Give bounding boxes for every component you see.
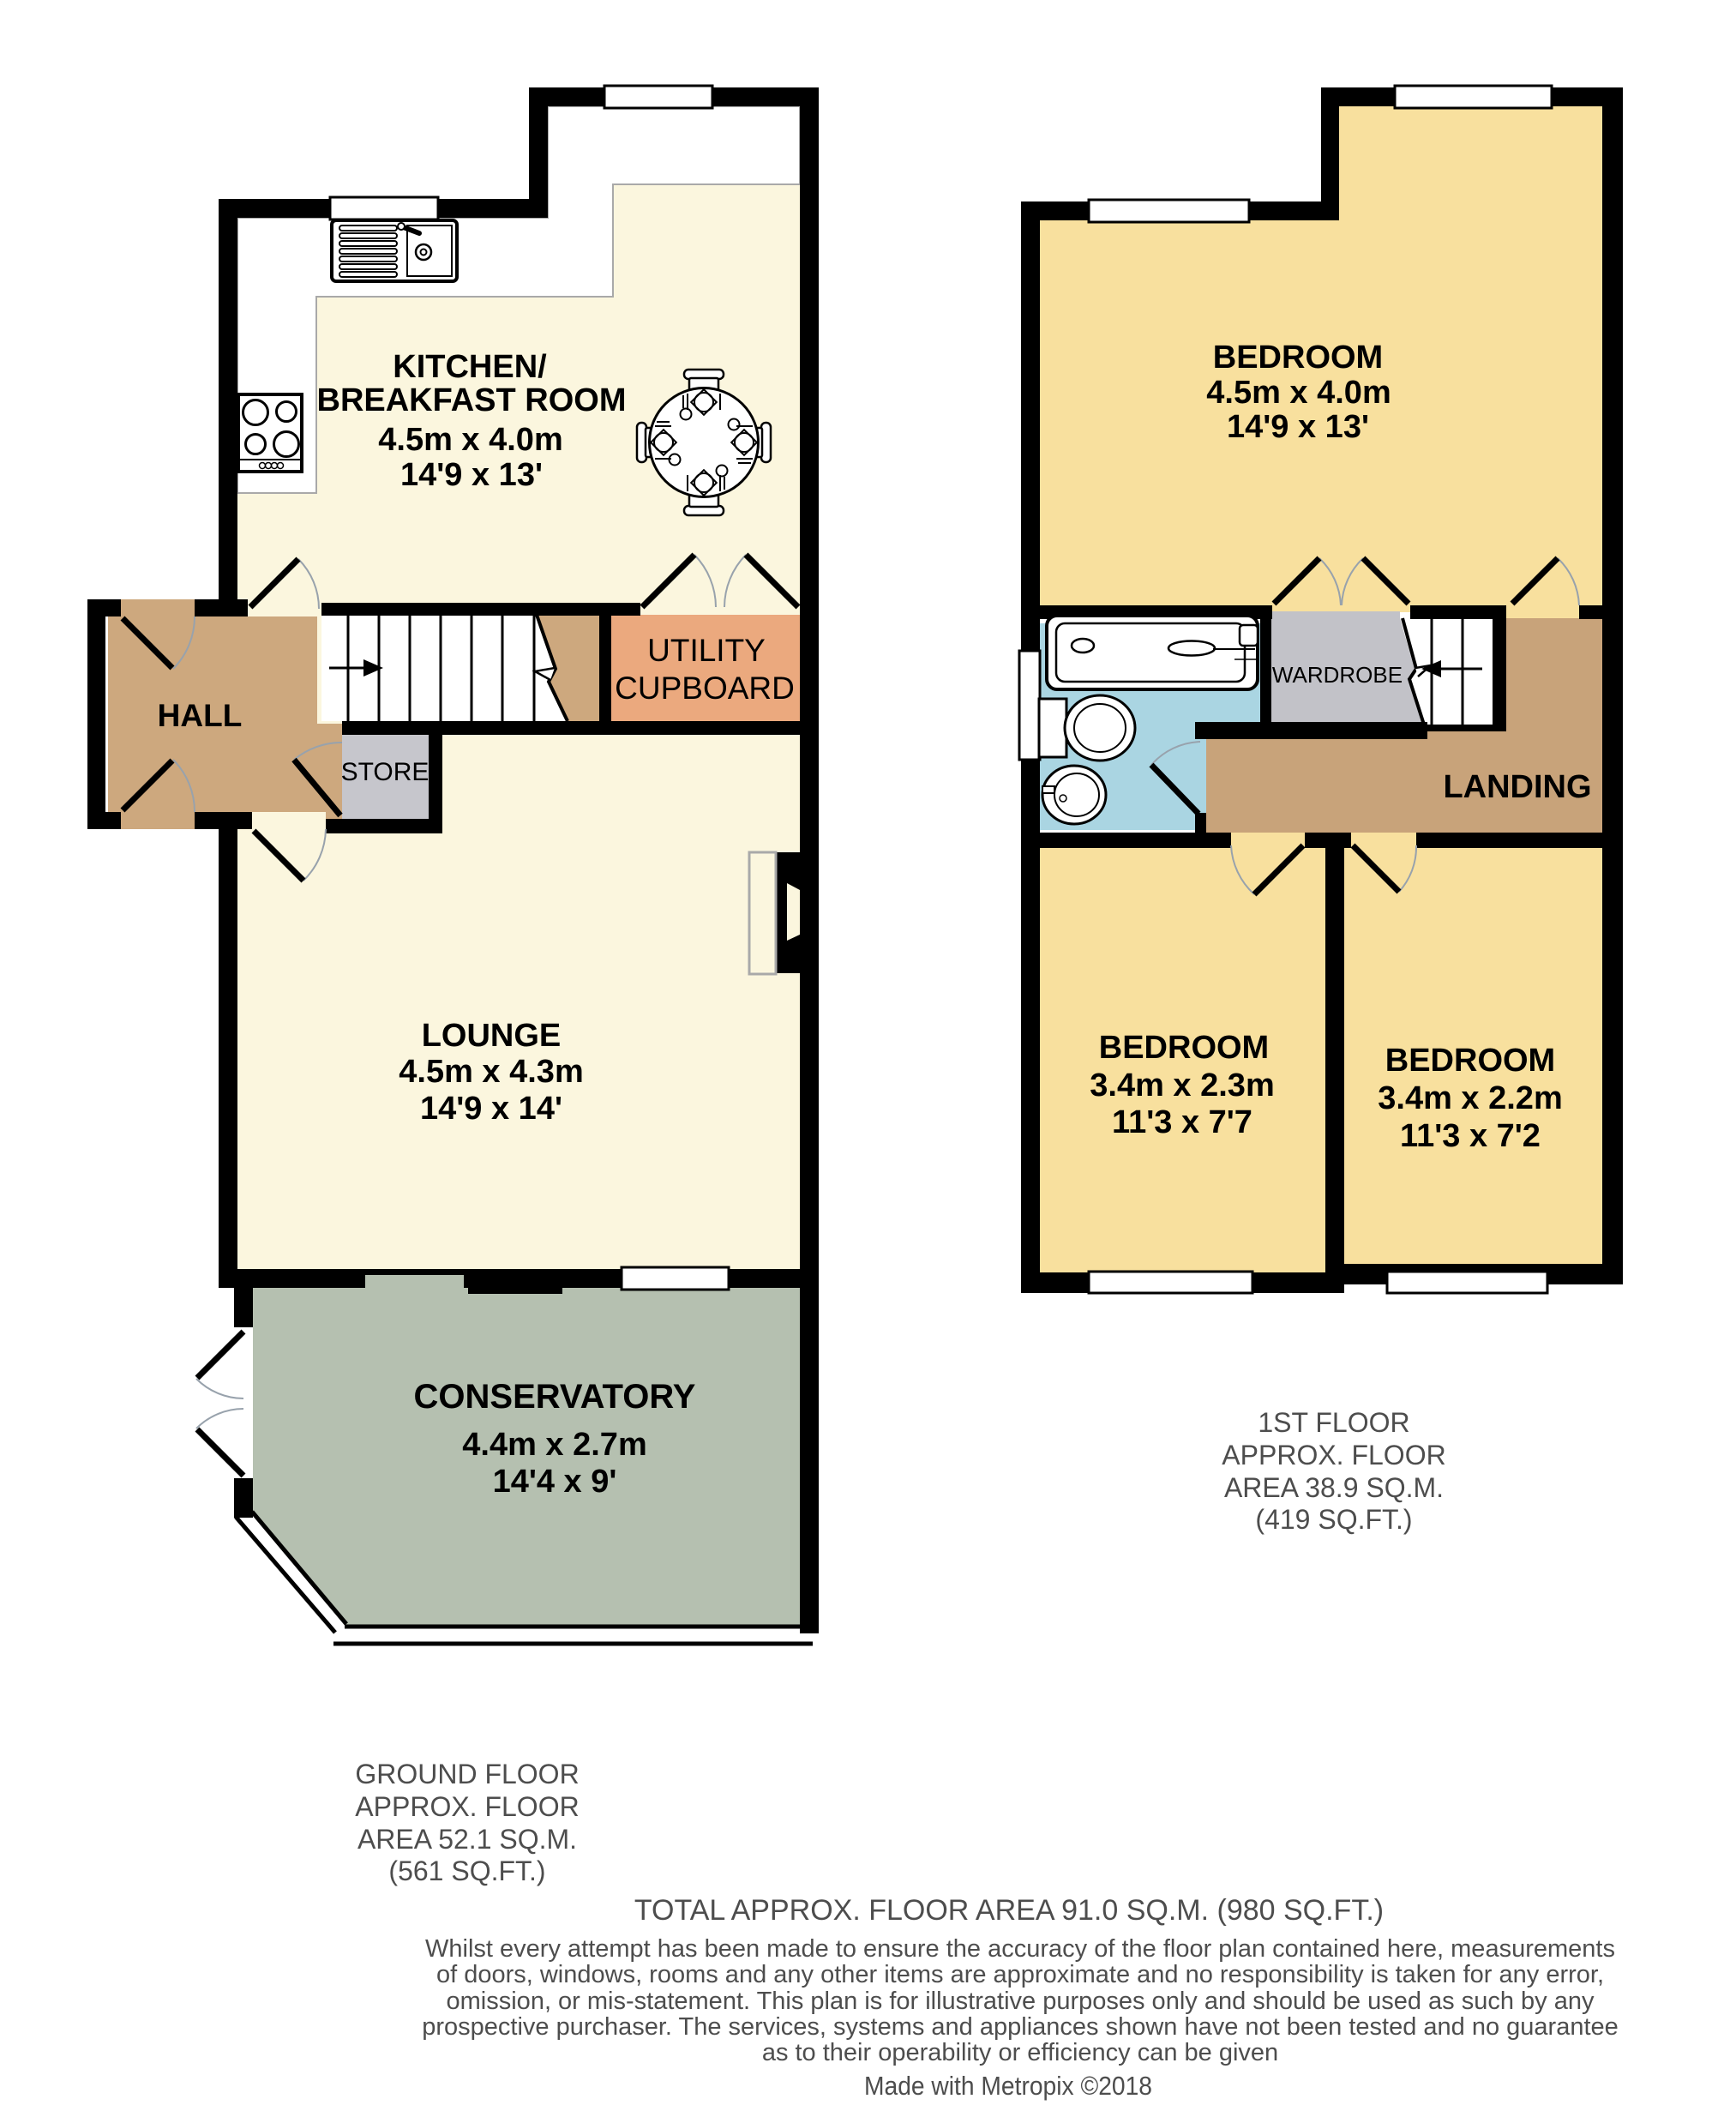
svg-text:14'9 x 13': 14'9 x 13' bbox=[1227, 409, 1369, 445]
svg-text:LANDING: LANDING bbox=[1443, 769, 1591, 805]
svg-text:BEDROOM: BEDROOM bbox=[1213, 340, 1383, 376]
svg-text:BEDROOM: BEDROOM bbox=[1099, 1030, 1269, 1066]
svg-text:LOUNGE: LOUNGE bbox=[422, 1018, 562, 1054]
svg-text:1ST FLOOR: 1ST FLOOR bbox=[1258, 1407, 1409, 1438]
svg-text:BEDROOM: BEDROOM bbox=[1385, 1043, 1555, 1079]
svg-text:4.5m x 4.0m: 4.5m x 4.0m bbox=[1206, 375, 1391, 411]
svg-text:CUPBOARD: CUPBOARD bbox=[615, 671, 795, 706]
svg-text:4.5m x 4.0m: 4.5m x 4.0m bbox=[378, 422, 562, 458]
svg-text:4.5m x 4.3m: 4.5m x 4.3m bbox=[399, 1054, 583, 1090]
svg-text:APPROX. FLOOR: APPROX. FLOOR bbox=[355, 1791, 579, 1822]
svg-text:prospective purchaser. The ser: prospective purchaser. The services, sys… bbox=[422, 2013, 1619, 2041]
svg-text:(419 SQ.FT.): (419 SQ.FT.) bbox=[1255, 1504, 1412, 1535]
svg-text:BREAKFAST ROOM: BREAKFAST ROOM bbox=[317, 382, 627, 418]
svg-text:omission, or mis-statement. Th: omission, or mis-statement. This plan is… bbox=[447, 1988, 1595, 2015]
svg-text:11'3 x 7'7: 11'3 x 7'7 bbox=[1112, 1104, 1252, 1140]
svg-text:14'9 x 13': 14'9 x 13' bbox=[400, 457, 543, 493]
svg-text:as to their operability or eff: as to their operability or efficiency ca… bbox=[762, 2039, 1278, 2066]
svg-text:CONSERVATORY: CONSERVATORY bbox=[414, 1378, 696, 1416]
svg-text:of doors, windows, rooms and a: of doors, windows, rooms and any other i… bbox=[436, 1961, 1604, 1988]
svg-text:AREA 38.9 SQ.M.: AREA 38.9 SQ.M. bbox=[1224, 1472, 1444, 1503]
svg-text:11'3 x 7'2: 11'3 x 7'2 bbox=[1400, 1118, 1541, 1154]
svg-text:STORE: STORE bbox=[341, 758, 429, 786]
svg-text:3.4m x 2.3m: 3.4m x 2.3m bbox=[1090, 1068, 1274, 1104]
svg-text:4.4m x 2.7m: 4.4m x 2.7m bbox=[462, 1427, 646, 1463]
svg-text:AREA 52.1 SQ.M.: AREA 52.1 SQ.M. bbox=[357, 1824, 577, 1855]
svg-text:14'4 x 9': 14'4 x 9' bbox=[493, 1464, 617, 1500]
svg-text:Made with Metropix ©2018: Made with Metropix ©2018 bbox=[864, 2071, 1152, 2101]
svg-text:WARDROBE: WARDROBE bbox=[1272, 662, 1403, 688]
svg-text:(561 SQ.FT.): (561 SQ.FT.) bbox=[388, 1855, 545, 1886]
svg-text:HALL: HALL bbox=[158, 698, 243, 733]
svg-text:TOTAL APPROX. FLOOR AREA 91.0: TOTAL APPROX. FLOOR AREA 91.0 SQ.M. (980… bbox=[634, 1894, 1384, 1927]
svg-text:GROUND FLOOR: GROUND FLOOR bbox=[355, 1759, 579, 1789]
svg-text:Whilst every attempt has been: Whilst every attempt has been made to en… bbox=[425, 1935, 1615, 1963]
svg-text:14'9 x 14': 14'9 x 14' bbox=[420, 1091, 562, 1127]
svg-text:3.4m x 2.2m: 3.4m x 2.2m bbox=[1378, 1080, 1562, 1116]
svg-text:KITCHEN/: KITCHEN/ bbox=[393, 349, 547, 385]
svg-text:UTILITY: UTILITY bbox=[647, 633, 766, 668]
svg-text:APPROX. FLOOR: APPROX. FLOOR bbox=[1222, 1440, 1445, 1470]
